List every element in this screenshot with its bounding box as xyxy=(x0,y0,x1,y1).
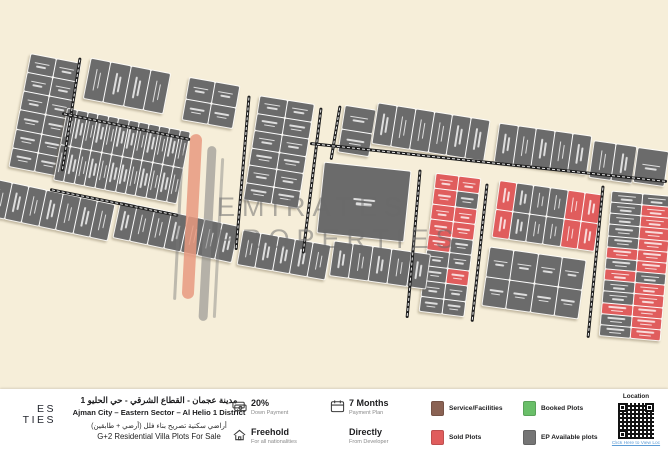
plot-available xyxy=(420,296,443,313)
plot-available xyxy=(568,134,591,174)
legend: Service/Facilities Booked Plots Sold Plo… xyxy=(431,401,615,452)
plot-block-bl3 xyxy=(238,231,331,280)
features-column-1: 20% Down Payment Freehold For all nation… xyxy=(232,399,297,452)
title-arabic: مدينة عجمان - القطاع الشرقي - حي الحليو … xyxy=(60,395,258,406)
plot-available xyxy=(442,299,465,316)
qr-code xyxy=(618,403,654,439)
plot-available xyxy=(212,82,240,106)
feature-title: Freehold xyxy=(251,428,297,437)
plot-available xyxy=(285,101,314,121)
plot-available xyxy=(208,104,236,128)
feature-title: Directly xyxy=(349,428,388,437)
plot-available xyxy=(448,253,471,270)
plot-sold xyxy=(435,174,458,191)
location-label: Location xyxy=(610,393,662,400)
plot-available xyxy=(444,284,467,301)
plot-available xyxy=(559,258,586,289)
plot-available xyxy=(511,251,538,282)
plot-block-b6 xyxy=(244,96,314,207)
plot-block-rb3 xyxy=(600,192,668,341)
plot-available xyxy=(506,280,533,311)
qr-finder xyxy=(618,403,627,412)
logo-line2: TIES xyxy=(0,415,56,426)
plot-block-rb2 xyxy=(482,248,585,319)
legend-item-available: EP Available plots xyxy=(523,430,615,452)
plot-available xyxy=(244,183,273,203)
feature-payment-plan: 7 Months Payment Plan xyxy=(330,399,389,428)
legend-label: Service/Facilities xyxy=(449,405,503,412)
cash-icon xyxy=(232,399,247,413)
legend-swatch-service xyxy=(431,401,444,416)
plot-available xyxy=(482,277,509,308)
plot-sold xyxy=(431,204,454,221)
plot-available xyxy=(450,238,473,255)
plot-available xyxy=(247,166,276,186)
company-logo-fragment: ES TIES xyxy=(0,404,56,426)
plot-block-b3 xyxy=(183,78,240,128)
plot-block-rb1 xyxy=(493,181,602,251)
plot-sold xyxy=(446,269,469,286)
plot-available xyxy=(535,254,562,285)
feature-directly: Directly From Developer xyxy=(330,428,389,452)
feature-freehold: Freehold For all nationalities xyxy=(232,428,297,452)
legend-label: Sold Plots xyxy=(449,434,481,441)
subtitle-english: G+2 Residential Villa Plots For Sale xyxy=(60,432,258,441)
legend-swatch-booked xyxy=(523,401,536,416)
plot-available xyxy=(186,78,214,102)
plot-sold xyxy=(602,303,632,316)
plot-available xyxy=(280,135,309,155)
feature-title: 7 Months xyxy=(349,399,389,408)
qr-finder xyxy=(618,430,627,439)
plot-available xyxy=(487,248,514,279)
plot-available xyxy=(609,225,639,238)
plot-sold xyxy=(429,220,452,237)
plot-map: EMIRATES PROPERTIES xyxy=(0,0,668,389)
subtitle-arabic: أراضي سكنية تصريح بناء فلل (أرضي + طابقي… xyxy=(60,422,258,430)
footer-bar: ES TIES مدينة عجمان - القطاع الشرقي - حي… xyxy=(0,389,668,452)
plot-sold xyxy=(457,177,480,194)
calendar-icon xyxy=(330,399,345,413)
legend-item-booked: Booked Plots xyxy=(523,401,615,430)
plot-available xyxy=(252,131,281,151)
legend-swatch-available xyxy=(523,430,536,445)
plot-available xyxy=(339,129,372,156)
plot-available xyxy=(274,170,303,190)
facility-plot xyxy=(318,163,411,242)
location-link[interactable]: Click Here to View Loc xyxy=(610,441,662,446)
legend-swatch-sold xyxy=(431,430,444,445)
plot-available xyxy=(554,287,581,318)
features-column-2: 7 Months Payment Plan Directly From Deve… xyxy=(330,399,389,452)
legend-label: Booked Plots xyxy=(541,405,583,412)
icon-spacer xyxy=(330,428,345,442)
house-icon xyxy=(232,428,247,442)
feature-title: 20% xyxy=(251,399,288,408)
plot-sold xyxy=(433,189,456,206)
legend-label: EP Available plots xyxy=(541,434,598,441)
plot-block-b11 xyxy=(420,174,480,316)
plot-sold xyxy=(632,305,662,318)
plot-available xyxy=(530,284,557,315)
plot-available xyxy=(603,292,633,305)
plot-available xyxy=(271,187,300,207)
feature-subtitle: Payment Plan xyxy=(349,410,389,416)
plot-available xyxy=(258,96,287,116)
plot-sold xyxy=(639,228,668,241)
feature-subtitle: From Developer xyxy=(349,439,388,445)
plot-available xyxy=(342,106,375,133)
plot-available xyxy=(455,192,478,209)
plot-block-b4 xyxy=(54,109,189,203)
plot-sold xyxy=(578,221,598,250)
plot-block-b2 xyxy=(84,59,170,114)
feature-subtitle: For all nationalities xyxy=(251,439,297,445)
plot-block-facility xyxy=(318,163,411,242)
plot-sold xyxy=(427,235,450,252)
plot-sold xyxy=(633,294,663,307)
plot-sold xyxy=(453,207,476,224)
legend-item-service: Service/Facilities xyxy=(431,401,523,430)
plot-available xyxy=(600,325,630,338)
plot-available xyxy=(10,148,38,170)
plot-block-bl4 xyxy=(330,241,430,288)
plot-sold xyxy=(451,223,474,240)
plot-sold xyxy=(630,328,660,341)
title-english: Ajman City – Eastern Sector – Al Helio 1… xyxy=(60,408,258,417)
qr-finder xyxy=(645,403,654,412)
feature-down-payment: 20% Down Payment xyxy=(232,399,297,428)
legend-item-sold: Sold Plots xyxy=(431,430,523,452)
flyer: EMIRATES PROPERTIES ES TIES مدينة عجمان … xyxy=(0,0,668,452)
feature-subtitle: Down Payment xyxy=(251,410,288,416)
plot-available xyxy=(183,99,211,123)
location-widget: Location Click Here to View Loc xyxy=(610,393,662,446)
project-title: مدينة عجمان - القطاع الشرقي - حي الحليو … xyxy=(60,395,258,441)
plot-block-bl2 xyxy=(114,202,239,262)
